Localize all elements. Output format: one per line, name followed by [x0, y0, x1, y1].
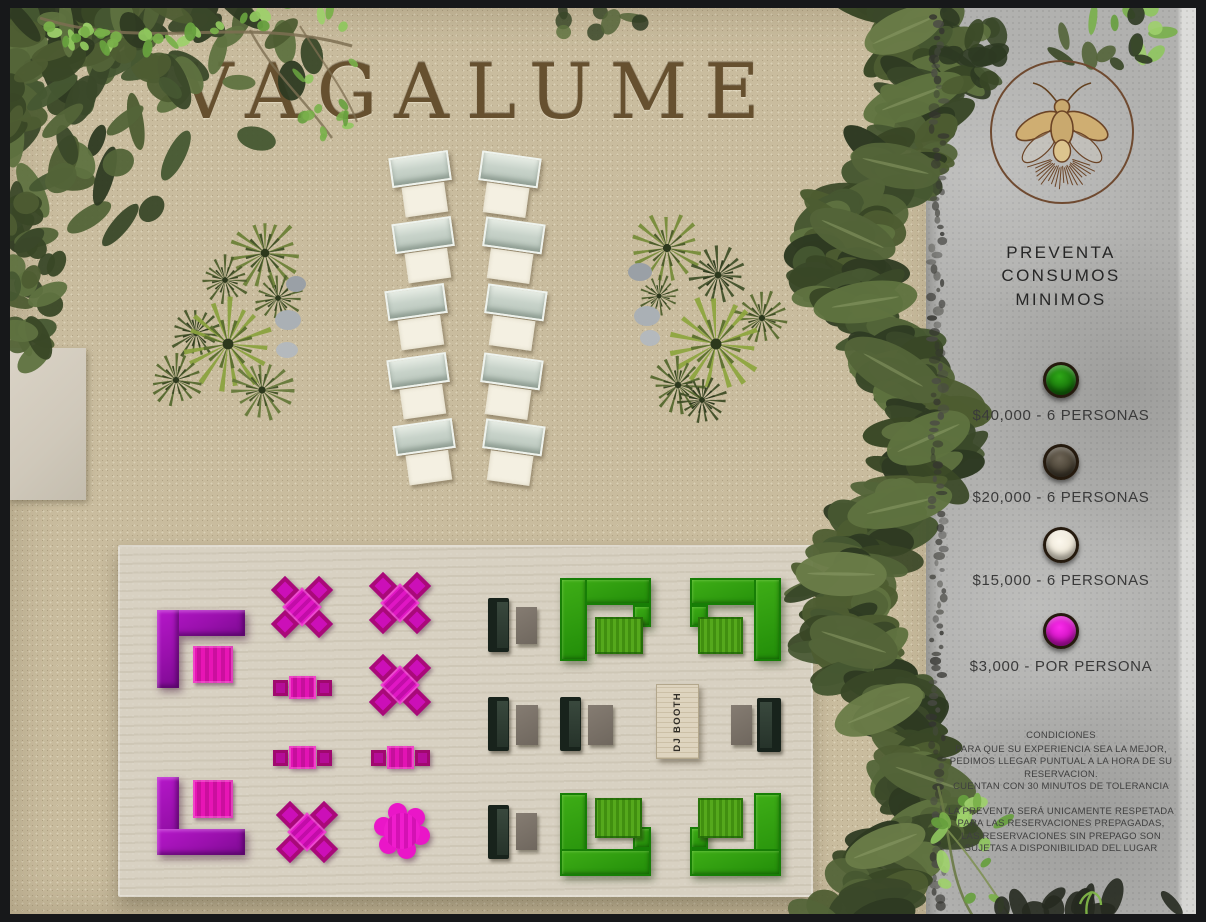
booth-side — [754, 578, 781, 661]
bed-mattress — [405, 450, 452, 486]
flower-table-top — [384, 813, 420, 849]
dark-sofa-set-20k — [560, 697, 614, 752]
dining-chair — [317, 680, 332, 696]
dining-chair — [371, 750, 386, 766]
conditions-line: PARA LAS RESERVACIONES PREPAGADAS, — [936, 818, 1186, 831]
gray-side-table — [516, 607, 537, 644]
heading-line: MINIMOS — [926, 288, 1196, 311]
tier-swatch-20000 — [1043, 444, 1079, 480]
green-booth-table — [698, 617, 743, 654]
beach-bed-15k — [392, 418, 459, 497]
beach-bed-15k — [476, 216, 543, 295]
beach-bed-15k — [384, 283, 451, 362]
heading-line: PREVENTA — [926, 241, 1196, 264]
green-booth-table — [595, 617, 643, 654]
pink-dining-table-3k — [371, 745, 430, 771]
tier-label: $20,000 - 6 PERSONAS — [973, 489, 1150, 506]
vagalume-seating-map: VAGALUME DJ BOOTH PR — [0, 0, 1206, 922]
beach-bed-15k — [478, 283, 545, 362]
bed-mattress — [483, 182, 530, 218]
dark-sofa — [757, 698, 781, 752]
gray-side-table — [588, 705, 613, 745]
dj-booth-label: DJ BOOTH — [672, 692, 683, 752]
beach-bed-15k — [391, 216, 458, 295]
dining-table-top — [289, 746, 316, 769]
sofa-seat — [760, 702, 772, 748]
conditions-line: SUJETAS A DISPONIBILIDAD DEL LUGAR — [936, 843, 1186, 856]
pink-flower-table-3k — [374, 803, 430, 859]
tier-item-40000: $40,000 - 6 PERSONAS — [926, 362, 1196, 424]
firefly-logo — [982, 52, 1142, 212]
bed-mattress — [489, 315, 536, 351]
tier-item-20000: $20,000 - 6 PERSONAS — [926, 444, 1196, 506]
conditions-line: LAS RESERVACIONES SIN PREPAGO SON — [936, 831, 1186, 844]
pink-x-table-3k — [374, 659, 426, 711]
frame-border-bottom — [0, 914, 1206, 922]
dining-table-top — [387, 746, 414, 769]
sidebar-content: PREVENTA CONSUMOS MINIMOS $40,000 - 6 PE… — [926, 8, 1196, 914]
conditions-line: RESERVACION. — [936, 769, 1186, 782]
conditions-paragraph-2: LA PREVENTA SERÁ UNICAMENTE RESPETADA PA… — [936, 806, 1186, 856]
beach-bed-15k — [476, 418, 543, 497]
heading-line: CONSUMOS — [926, 264, 1196, 287]
booth-back — [690, 849, 781, 876]
dark-sofa — [560, 697, 581, 751]
dj-booth: DJ BOOTH — [656, 684, 699, 759]
dining-table-top — [289, 676, 316, 699]
dining-chair — [273, 680, 288, 696]
bed-mattress — [401, 182, 448, 218]
sofa-seat — [497, 809, 508, 855]
pink-dining-table-3k — [273, 675, 332, 701]
frame-border-right — [1196, 0, 1206, 922]
bed-mattress — [404, 248, 451, 284]
stone-slab — [8, 348, 86, 500]
dark-sofa-set-20k — [488, 805, 542, 860]
beach-bed-15k — [472, 150, 539, 229]
tier-item-15000: $15,000 - 6 PERSONAS — [926, 527, 1196, 589]
booth-side — [560, 578, 587, 661]
tier-label: $15,000 - 6 PERSONAS — [973, 572, 1150, 589]
gray-side-table — [516, 813, 537, 850]
pink-x-table-3k — [374, 577, 426, 629]
firefly-logo-svg — [982, 52, 1142, 212]
pink-x-table-3k — [281, 806, 333, 858]
dining-chair — [415, 750, 430, 766]
tier-swatch-15000 — [1043, 527, 1079, 563]
venue-title: VAGALUME — [150, 47, 805, 136]
green-booth-table — [595, 798, 642, 838]
tier-swatch-40000 — [1043, 362, 1079, 398]
dark-sofa-set-20k — [488, 598, 542, 653]
conditions-line: CUENTAN CON 30 MINUTOS DE TOLERANCIA — [936, 781, 1186, 794]
sofa-seat — [497, 701, 508, 747]
sofa-side — [157, 610, 179, 688]
green-booth-table — [698, 798, 743, 838]
bed-mattress — [487, 248, 534, 284]
conditions-line: LA PREVENTA SERÁ UNICAMENTE RESPETADA — [936, 806, 1186, 819]
frame-border-top — [0, 0, 1206, 8]
bed-mattress — [397, 315, 444, 351]
sofa-seat — [497, 602, 508, 648]
sofa-back — [157, 829, 245, 855]
conditions-line: PEDIMOS LLEGAR PUNTUAL A LA HORA DE SU — [936, 756, 1186, 769]
tier-label: $3,000 - POR PERSONA — [970, 658, 1153, 675]
dark-sofa — [488, 697, 509, 751]
dark-sofa — [488, 598, 509, 652]
conditions-paragraph-1: PARA QUE SU EXPERIENCIA SEA LA MEJOR, PE… — [936, 744, 1186, 794]
preventa-heading: PREVENTA CONSUMOS MINIMOS — [926, 241, 1196, 311]
pink-dining-table-3k — [273, 745, 332, 771]
pink-side-table-3k — [193, 646, 233, 683]
beach-bed-15k — [474, 352, 541, 431]
dining-chair — [273, 750, 288, 766]
pink-side-table-3k — [193, 780, 233, 818]
pink-x-table-3k — [276, 581, 328, 633]
frame-border-left — [0, 0, 10, 922]
bed-mattress — [399, 384, 446, 420]
conditions-block: CONDICIONES PARA QUE SU EXPERIENCIA SEA … — [936, 730, 1186, 856]
gray-side-table — [516, 705, 538, 745]
bed-mattress — [485, 384, 532, 420]
bed-mattress — [487, 450, 534, 486]
conditions-line: PARA QUE SU EXPERIENCIA SEA LA MEJOR, — [936, 744, 1186, 757]
dark-sofa-set-20k — [731, 698, 785, 753]
gray-side-table — [731, 705, 752, 745]
tier-item-3000: $3,000 - POR PERSONA — [926, 613, 1196, 675]
dark-sofa — [488, 805, 509, 859]
dark-sofa-set-20k — [488, 697, 542, 752]
dining-chair — [317, 750, 332, 766]
conditions-title: CONDICIONES — [936, 730, 1186, 743]
booth-back — [560, 849, 651, 876]
sofa-seat — [569, 701, 580, 747]
tier-label: $40,000 - 6 PERSONAS — [973, 407, 1150, 424]
tier-swatch-3000 — [1043, 613, 1079, 649]
